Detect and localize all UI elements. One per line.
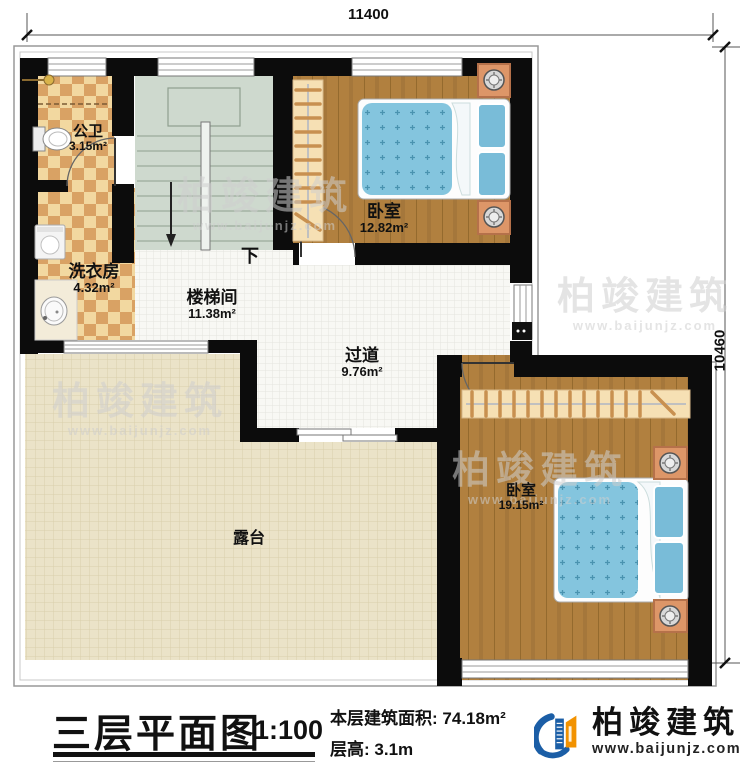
floor-plan-drawing xyxy=(0,0,750,778)
bedroom-top-window xyxy=(352,58,462,76)
room-label-bedroom-top: 卧室 12.82m² xyxy=(360,203,408,234)
bathroom-window xyxy=(48,58,106,76)
title-underline xyxy=(53,752,315,757)
floor-plan-page: 柏竣建筑 www.baijunjz.com 柏竣建筑 www.baijunjz.… xyxy=(0,0,750,778)
brand-website: www.baijunjz.com xyxy=(592,741,741,757)
room-label-bathroom: 公卫 3.15m² xyxy=(69,124,107,152)
wardrobe-bedroom-right xyxy=(462,390,690,418)
stairwell-window xyxy=(158,58,254,76)
washing-machine xyxy=(35,225,65,259)
title-block: 三层平面图 1:100 本层建筑面积: 74.18m² 层高: 3.1m xyxy=(0,695,750,778)
nightstand-bedroom-right-1 xyxy=(654,447,687,479)
wardrobe-bedroom-top xyxy=(293,80,323,241)
floor-area-line: 本层建筑面积: 74.18m² xyxy=(330,704,506,729)
room-label-laundry: 洗衣房 4.32m² xyxy=(69,263,120,294)
brand-name: 柏竣建筑 xyxy=(592,707,741,738)
room-label-stairwell: 楼梯间 11.38m² xyxy=(187,289,238,320)
hallway-east-window xyxy=(512,285,532,340)
building-logo-icon xyxy=(534,707,586,759)
stair-direction-label: 下 xyxy=(241,242,259,268)
room-label-terrace: 露台 xyxy=(233,531,265,548)
toilet xyxy=(33,127,71,151)
title-underline-thin xyxy=(53,761,315,762)
terrace-sliding-door xyxy=(297,429,397,441)
plan-title: 三层平面图 xyxy=(52,703,262,759)
laundry-terrace-window xyxy=(64,341,208,353)
nightstand-bedroom-top-1 xyxy=(478,64,510,97)
bedroom-right-south-window xyxy=(462,660,688,678)
floor-height-line: 层高: 3.1m xyxy=(330,735,413,760)
bed-bedroom-top xyxy=(358,99,510,199)
dimension-top: 11400 xyxy=(348,6,389,23)
brand-logo: 柏竣建筑 www.baijunjz.com xyxy=(534,707,741,759)
plan-scale: 1:100 xyxy=(254,715,323,746)
dimension-right: 10460 xyxy=(712,321,729,381)
room-label-hallway: 过道 9.76m² xyxy=(341,347,382,378)
room-label-bedroom-right: 卧室 19.15m² xyxy=(499,483,544,511)
nightstand-bedroom-top-2 xyxy=(478,201,510,234)
nightstand-bedroom-right-2 xyxy=(654,600,687,632)
bed-bedroom-right xyxy=(554,478,688,602)
